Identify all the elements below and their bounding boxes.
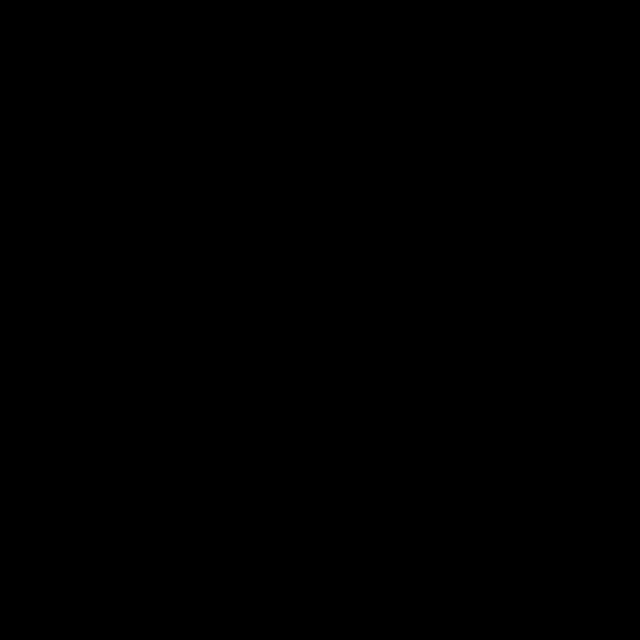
legend-start-dot-icon (367, 504, 378, 515)
track-map-window (0, 0, 640, 640)
legend (367, 504, 378, 541)
legend-last-dot-icon (367, 530, 378, 541)
map-canvas[interactable] (0, 0, 640, 640)
